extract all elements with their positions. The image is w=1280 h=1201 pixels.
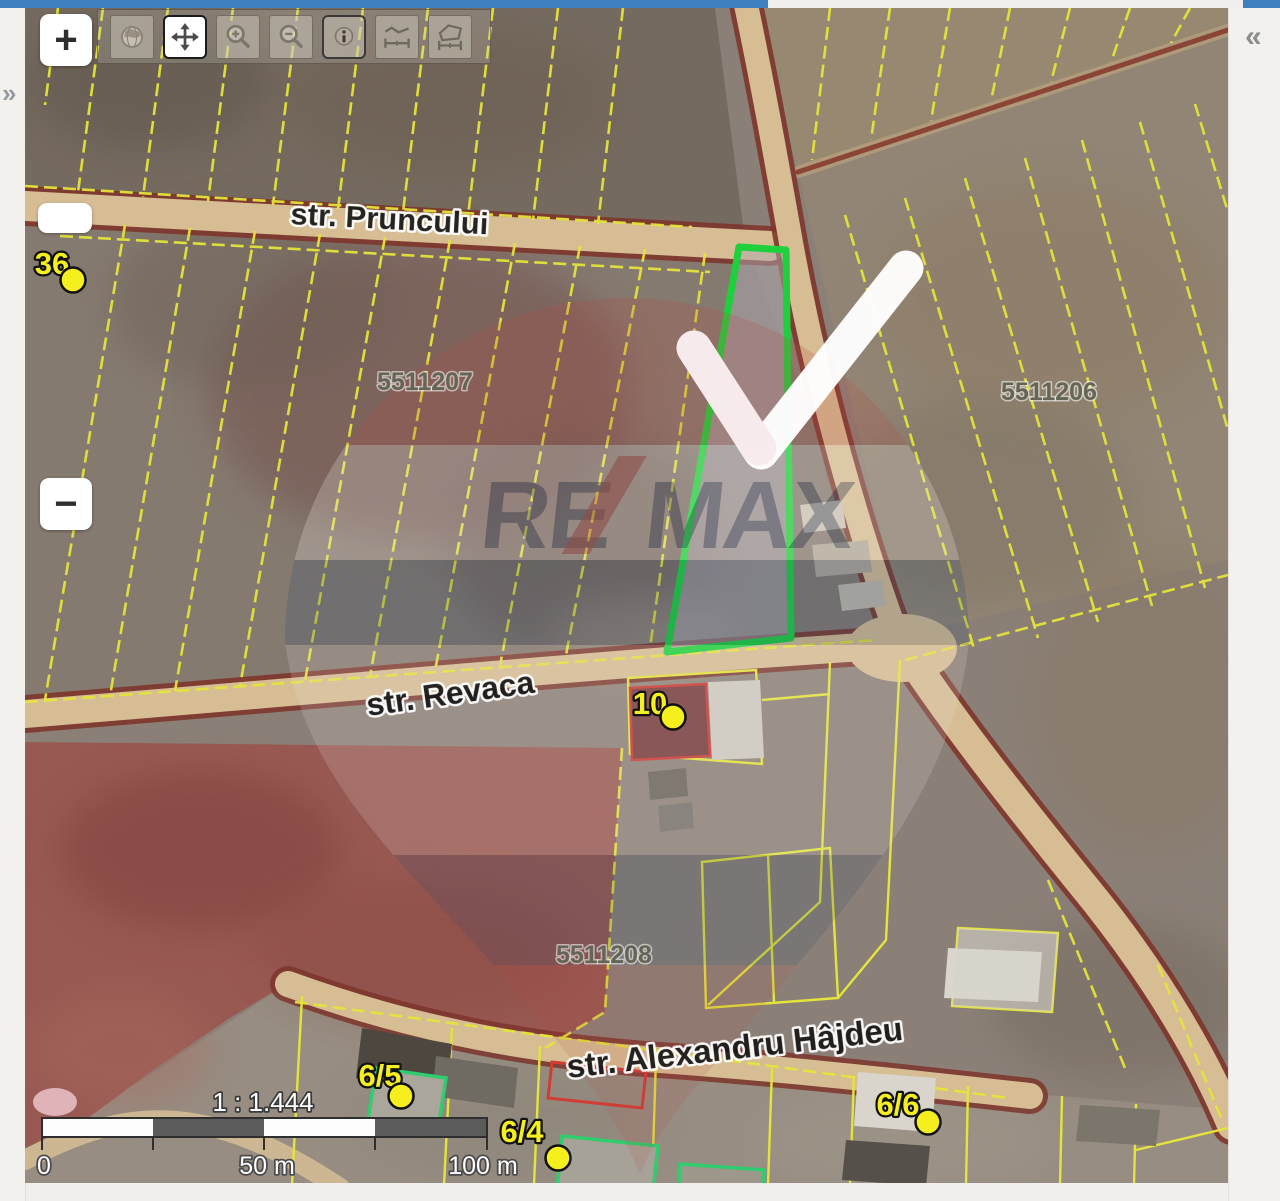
parcel-number-5511207: 5511207 <box>377 368 473 396</box>
app-window: » « <box>0 0 1280 1201</box>
top-accent-bar-right <box>1243 0 1280 8</box>
zoom-to-extent-button[interactable] <box>110 15 154 59</box>
zoom-out-button[interactable]: − <box>40 478 92 530</box>
scale-tick-0: 0 <box>37 1152 51 1180</box>
scale-ratio-text: 1 : 1.444 <box>212 1087 313 1117</box>
watermark-text-max: MAX <box>640 462 860 569</box>
pan-tool-button[interactable] <box>163 15 207 59</box>
right-panel-collapsed: « <box>1228 8 1280 1201</box>
magnifier-minus-icon <box>274 20 308 54</box>
scale-tick-50m: 50 m <box>239 1152 295 1180</box>
identify-tool-button[interactable] <box>322 15 366 59</box>
collapse-right-panel-icon[interactable]: « <box>1245 22 1262 52</box>
zoom-in-tool-button[interactable] <box>216 15 260 59</box>
zoom-out-tool-button[interactable] <box>269 15 313 59</box>
magnifier-plus-icon <box>221 20 255 54</box>
scale-tick-100m: 100 m <box>448 1152 517 1180</box>
parcel-number-5511206: 5511206 <box>1001 378 1097 406</box>
parcel-number-5511208: 5511208 <box>556 941 652 969</box>
measure-area-button[interactable] <box>428 15 472 59</box>
pan-arrows-icon <box>168 20 202 54</box>
measure-distance-icon <box>380 20 414 54</box>
top-accent-bar-left <box>0 0 768 8</box>
globe-icon <box>115 20 149 54</box>
left-panel-collapsed: » <box>0 8 26 1201</box>
zoom-in-button[interactable]: + <box>40 14 92 66</box>
house-number-6-6: 6/6 <box>876 1087 919 1122</box>
map-toolbar <box>97 9 491 64</box>
measure-area-icon <box>433 20 467 54</box>
house-number-6-4: 6/4 <box>500 1114 544 1149</box>
measure-distance-button[interactable] <box>375 15 419 59</box>
zoom-slider-handle[interactable] <box>38 203 92 233</box>
info-icon <box>327 20 361 54</box>
map-canvas[interactable]: RE MAX str. Pruncului str. Revaca str. A… <box>25 8 1228 1183</box>
expand-left-panel-icon[interactable]: » <box>2 80 16 106</box>
